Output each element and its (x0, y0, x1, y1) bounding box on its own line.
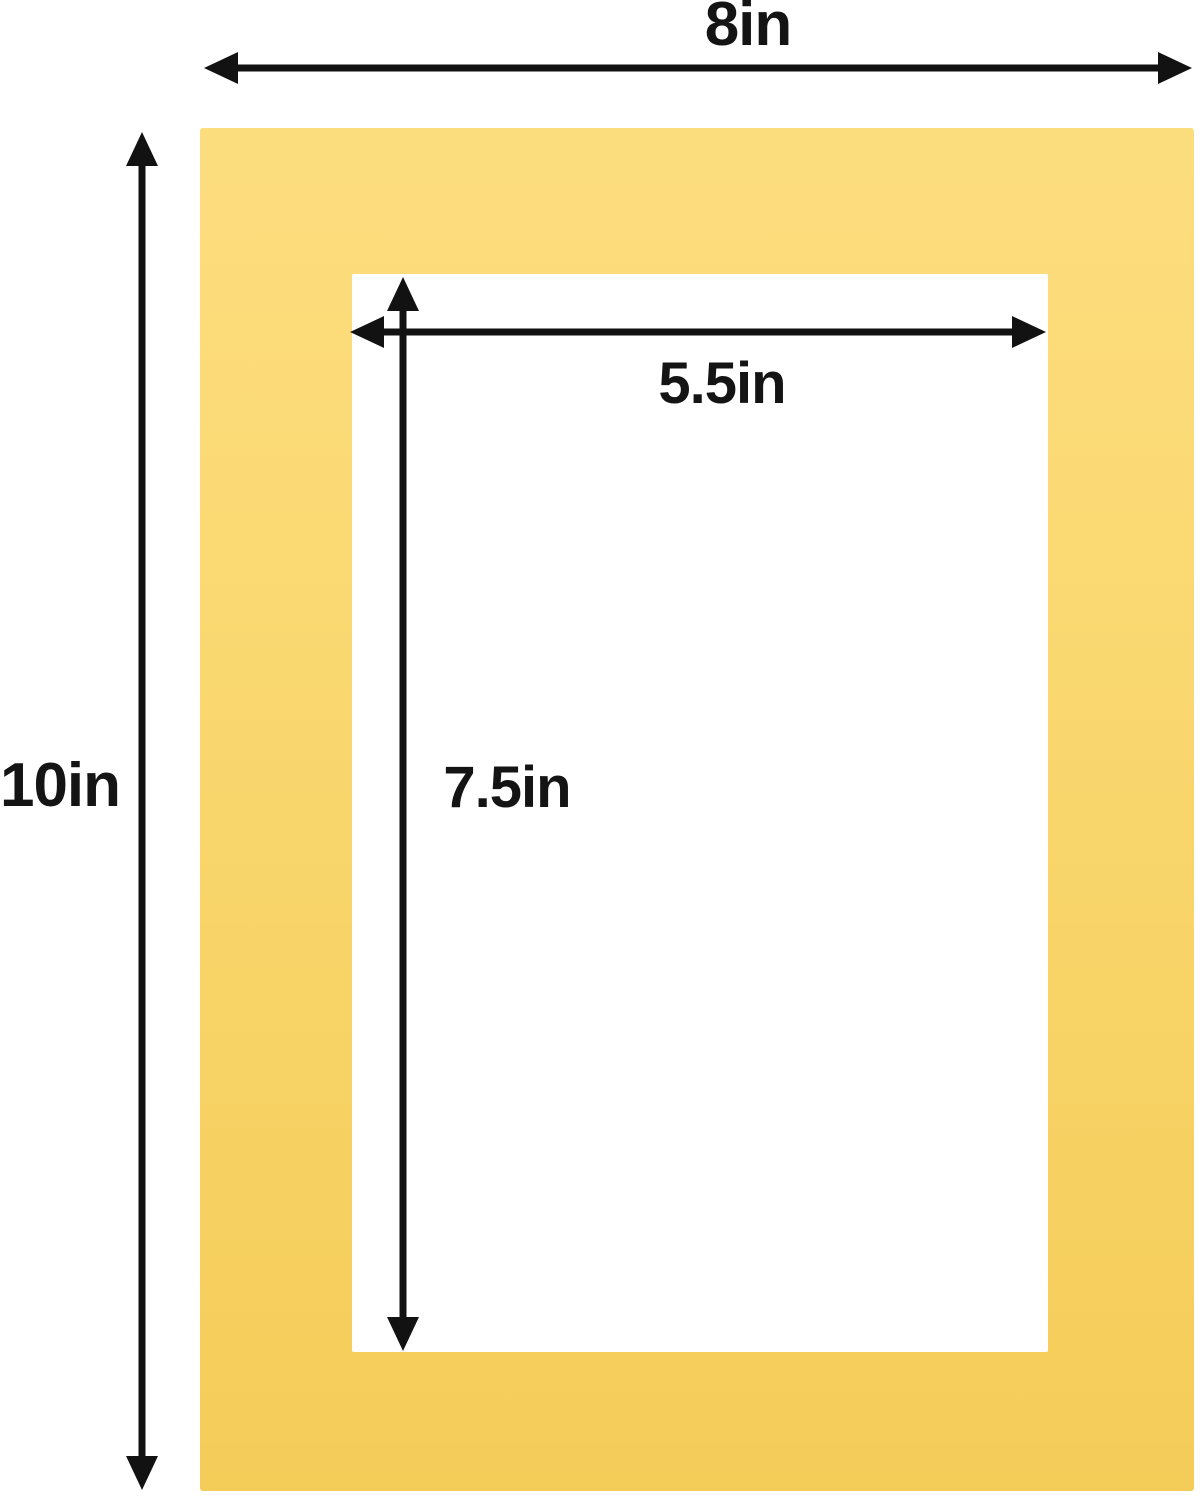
arrowhead-right-icon (1158, 52, 1192, 84)
arrowhead-left-icon (204, 52, 238, 84)
opening-height-dimension-arrow (383, 272, 423, 1356)
outer-height-dimension-arrow (122, 126, 162, 1496)
arrowhead-up-icon (387, 277, 419, 311)
dimension-diagram: 8in 10in 5.5in 7.5in (0, 0, 1202, 1500)
arrowhead-up-icon (126, 132, 158, 166)
outer-height-label: 10in (0, 752, 126, 820)
opening-height-label: 7.5in (430, 756, 584, 820)
arrowhead-down-icon (126, 1456, 158, 1490)
arrowhead-left-icon (350, 316, 384, 348)
opening-width-dimension-arrow (346, 311, 1052, 353)
outer-width-label: 8in (655, 0, 841, 59)
arrowhead-right-icon (1012, 316, 1046, 348)
arrowhead-down-icon (387, 1317, 419, 1351)
opening-width-label: 5.5in (634, 352, 810, 416)
